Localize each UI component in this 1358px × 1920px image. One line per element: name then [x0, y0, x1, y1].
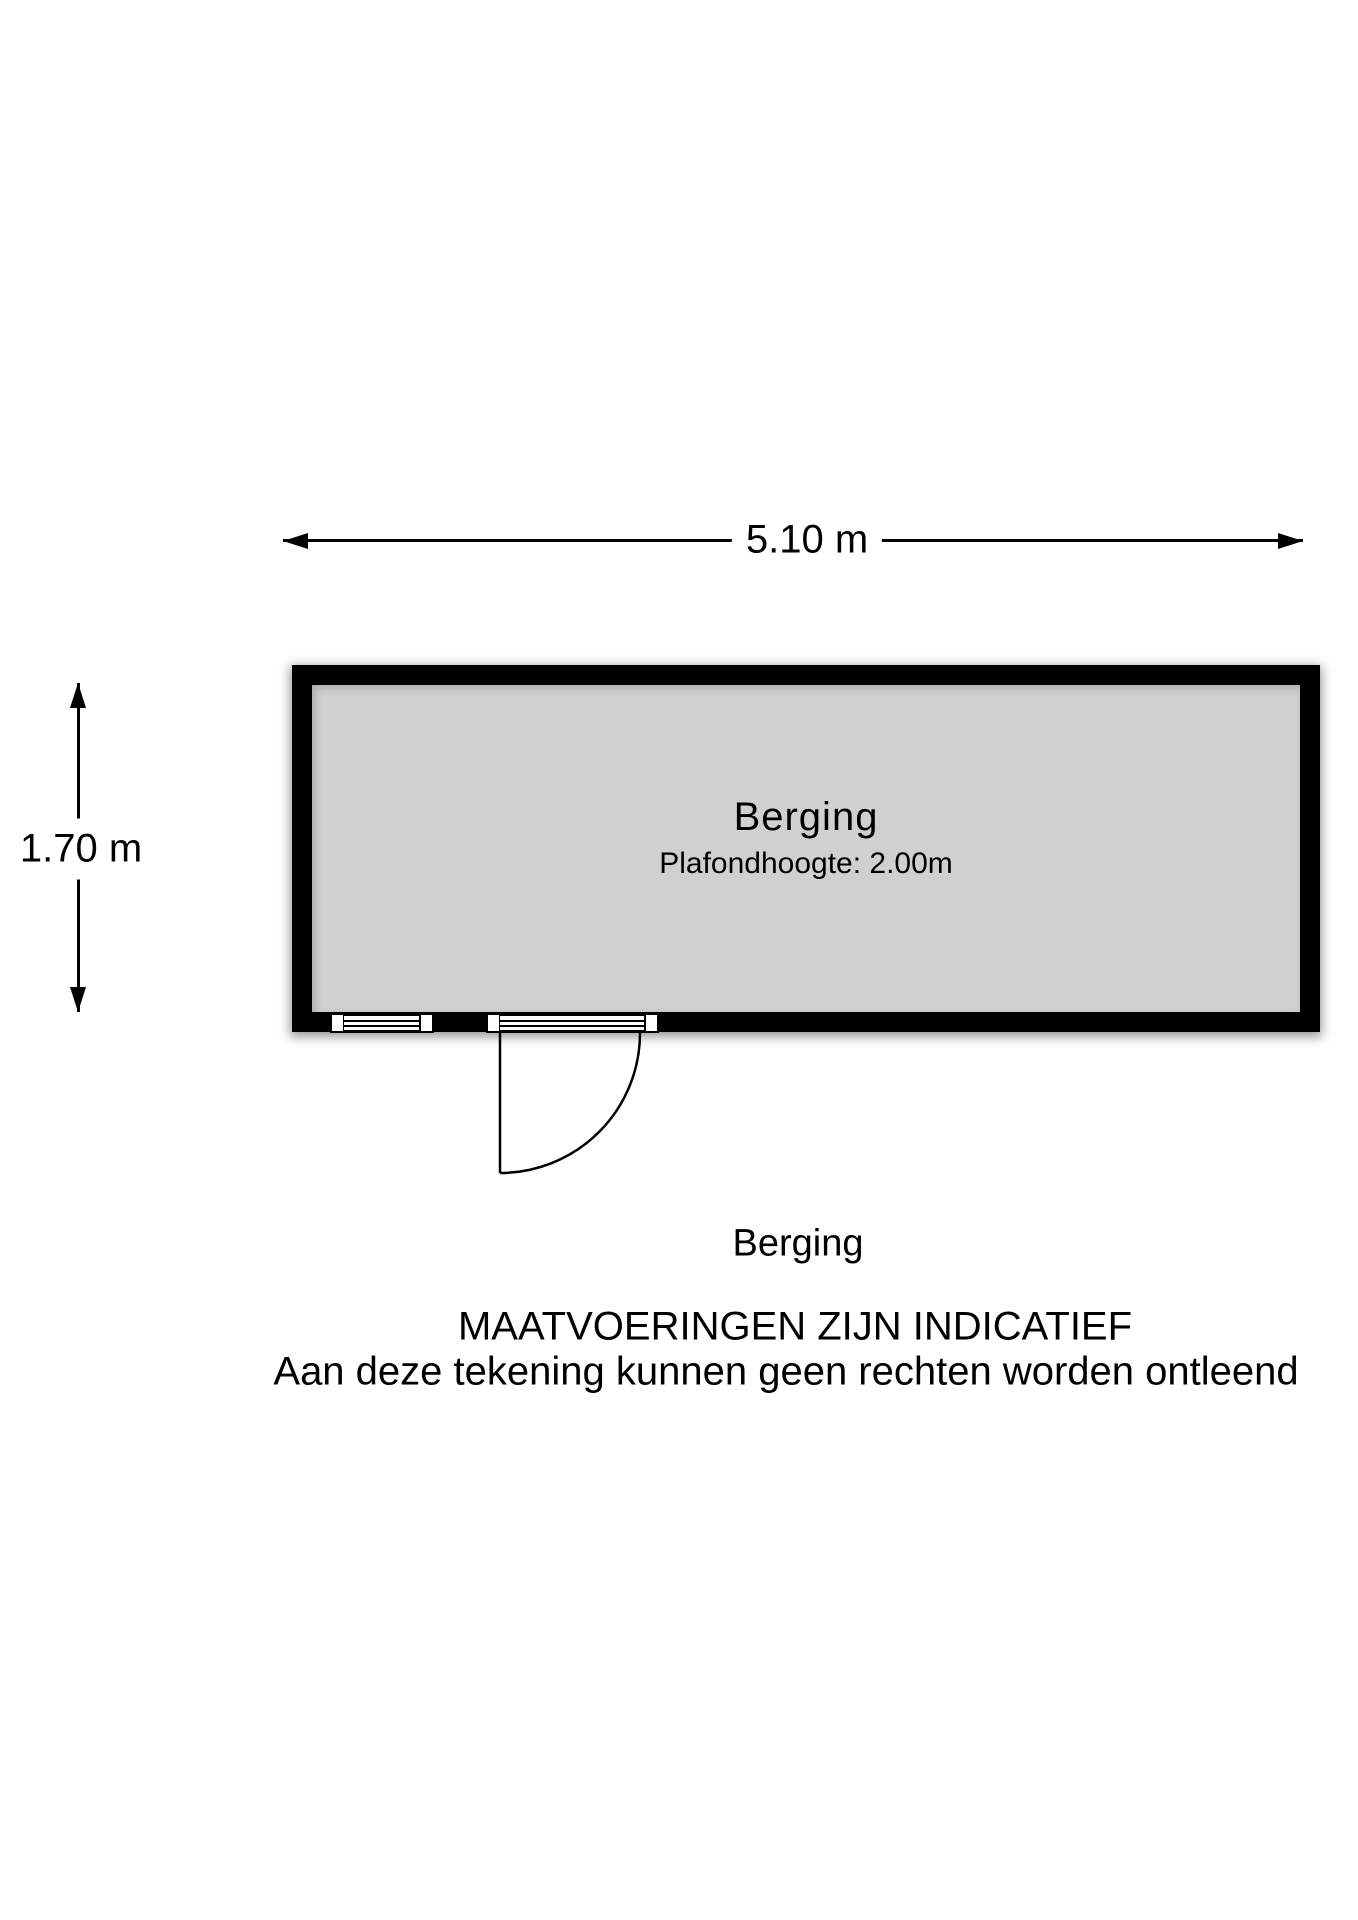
room-name-label: Berging: [312, 795, 1300, 839]
height-dimension-label: 1.70 m: [16, 819, 146, 880]
window-jamb: [419, 1013, 434, 1033]
floorplan-canvas: 5.10 m 1.70 m Berging Plafondhoogte: 2.0…: [0, 0, 1358, 1920]
floor-caption: Berging: [733, 1223, 864, 1266]
door-swing-icon: [495, 1028, 655, 1188]
arrow-left-icon: [283, 533, 308, 549]
room-berging: Berging Plafondhoogte: 2.00m: [292, 665, 1320, 1032]
window-symbol: [344, 1013, 420, 1033]
arrow-right-icon: [1278, 533, 1303, 549]
arrow-up-icon: [70, 683, 86, 708]
width-dimension-label: 5.10 m: [732, 516, 882, 565]
room-text-block: Berging Plafondhoogte: 2.00m: [312, 795, 1300, 880]
arrow-down-icon: [70, 987, 86, 1012]
window-jamb: [330, 1013, 345, 1033]
room-ceiling-height-label: Plafondhoogte: 2.00m: [312, 847, 1300, 880]
disclaimer-line-2: Aan deze tekening kunnen geen rechten wo…: [273, 1350, 1298, 1395]
disclaimer-line-1: MAATVOERINGEN ZIJN INDICATIEF: [458, 1305, 1132, 1350]
